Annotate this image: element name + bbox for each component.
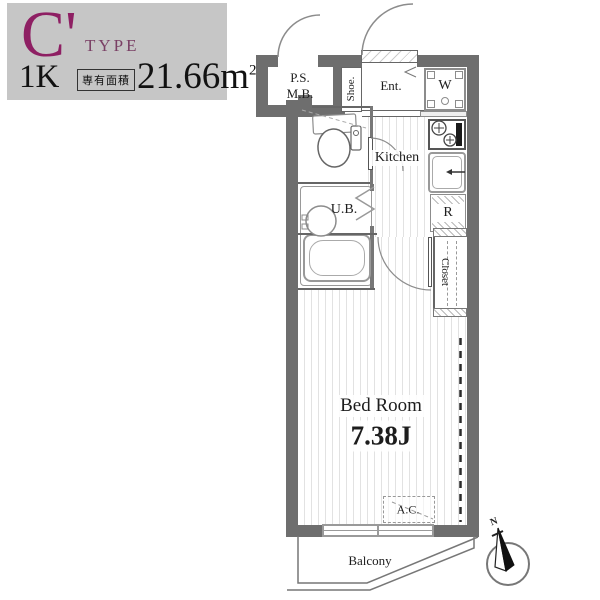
bedroom-size-label: 7.38J: [348, 421, 415, 452]
ps-label: P.S.: [290, 70, 310, 86]
bedroom-name-label: Bed Room: [337, 395, 425, 417]
floorplan-page: C' TYPE 1K 専有面積 21.66m2: [0, 0, 600, 600]
mb-label: M.B.: [287, 86, 314, 102]
bedroom-door-arc: [378, 237, 431, 290]
entrance-door-arc: [362, 4, 413, 55]
closet-label: Closet: [439, 258, 451, 286]
unit-bath-label: U.B.: [331, 202, 357, 218]
ps-door-arc: [278, 15, 320, 57]
entrance-jamb-mark: [405, 67, 416, 77]
balcony-label: Balcony: [348, 553, 391, 569]
washer-label: W: [438, 78, 451, 94]
ub-folding-door: [356, 187, 374, 220]
ac-label: A.C.: [397, 503, 420, 518]
shoe-label: Shoe.: [345, 77, 357, 102]
kitchen-label: Kitchen: [372, 150, 422, 166]
sink-faucet-head: [446, 169, 452, 175]
toilet-control: [351, 126, 361, 150]
entrance-label: Ent.: [380, 78, 401, 94]
refrigerator-label: R: [443, 205, 452, 221]
